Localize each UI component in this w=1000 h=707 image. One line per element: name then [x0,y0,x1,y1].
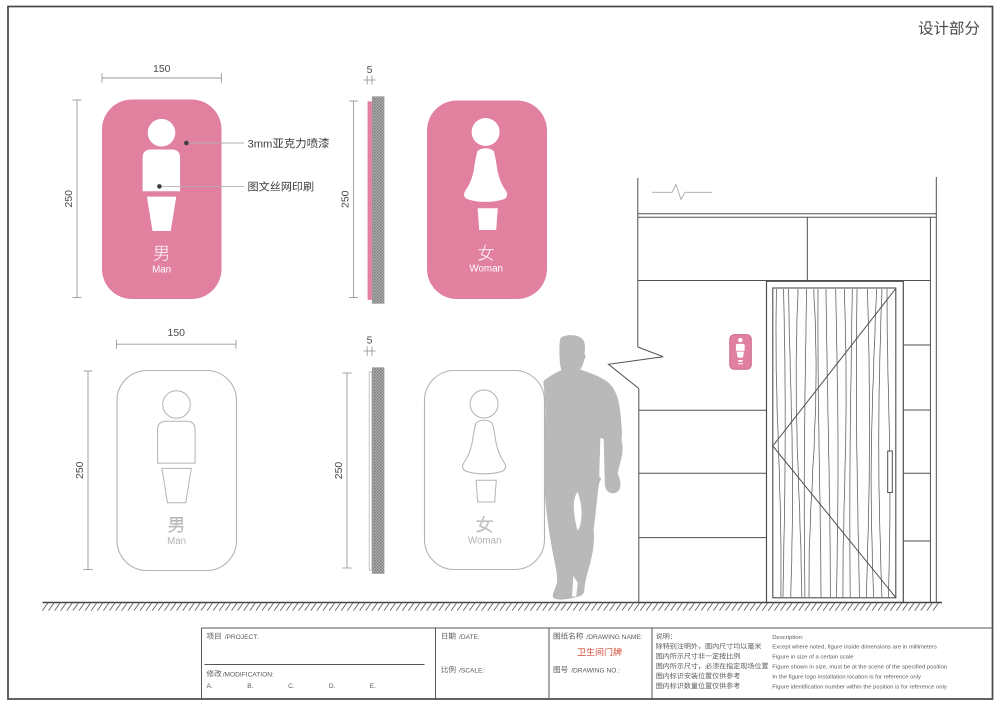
svg-text:Figure identification number w: Figure identification number within the … [772,684,947,690]
svg-text:/DRAWING NAME:: /DRAWING NAME: [586,634,642,641]
svg-text:Woman: Woman [469,264,503,275]
svg-text:5: 5 [367,335,373,347]
svg-text:Description:: Description: [772,635,803,641]
svg-text:Man: Man [167,536,186,547]
svg-text:3mm: 3mm [248,138,273,150]
svg-text:Figure shown in size, must be: Figure shown in size, must be at the sce… [772,665,947,671]
svg-text:Figure in size of a certain sc: Figure in size of a certain scale [772,655,854,661]
svg-text:E.: E. [370,683,376,690]
svg-text:/DRAWING NO.:: /DRAWING NO.: [571,667,620,674]
svg-text:250: 250 [333,462,345,480]
svg-text:250: 250 [340,190,352,208]
svg-text:150: 150 [167,327,185,339]
svg-text:Woman: Woman [468,536,502,547]
svg-text:250: 250 [63,190,75,208]
svg-text:In the figure logo installatio: In the figure logo installation location… [772,674,921,680]
svg-text:C.: C. [288,683,295,690]
svg-text:/PROJECT:: /PROJECT: [225,634,259,641]
svg-text:D.: D. [329,683,336,690]
svg-text:B.: B. [247,683,253,690]
svg-text:5: 5 [367,64,373,76]
svg-text:150: 150 [153,63,171,75]
svg-text:Man: Man [152,265,171,276]
svg-text:/SCALE:: /SCALE: [459,667,484,674]
svg-text:Except where noted, figure ins: Except where noted, figure inside dimens… [772,645,937,651]
svg-text:A.: A. [207,683,213,690]
svg-text:/DATE:: /DATE: [459,634,480,641]
svg-text:/MODIFICATION:: /MODIFICATION: [223,671,274,678]
svg-text:250: 250 [74,461,86,479]
